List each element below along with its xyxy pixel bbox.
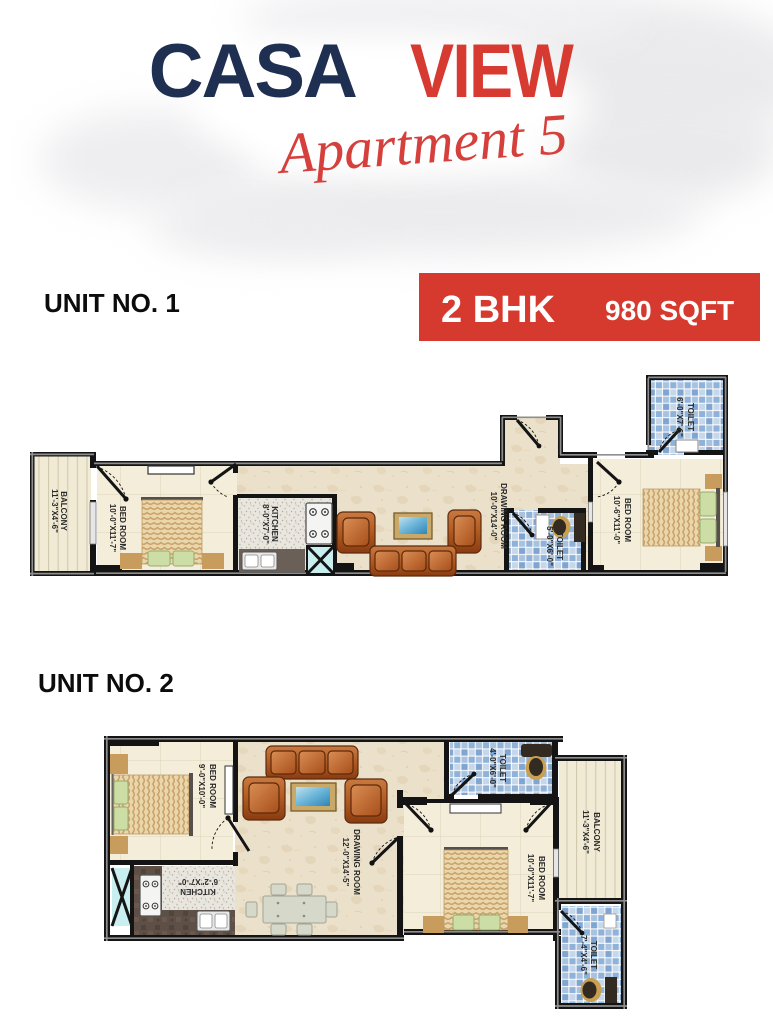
svg-text:TOILET: TOILET	[555, 532, 564, 560]
svg-text:6'-0"X7'-6": 6'-0"X7'-6"	[675, 397, 684, 437]
svg-text:10'-0"X11'-7": 10'-0"X11'-7"	[526, 854, 535, 903]
svg-text:10'-0"X14'-0": 10'-0"X14'-0"	[489, 492, 498, 541]
svg-text:11'-3"X4'-6": 11'-3"X4'-6"	[581, 810, 590, 854]
svg-text:BED ROOM: BED ROOM	[623, 498, 632, 542]
svg-text:TOILET: TOILET	[589, 941, 598, 969]
svg-text:12'-0"X14'-5": 12'-0"X14'-5"	[341, 838, 350, 887]
svg-text:BED ROOM: BED ROOM	[118, 506, 127, 550]
svg-text:DRAWING ROOM: DRAWING ROOM	[352, 829, 361, 895]
svg-text:10'-6"X11'-0": 10'-6"X11'-0"	[612, 496, 621, 545]
svg-text:BED ROOM: BED ROOM	[208, 764, 217, 808]
svg-text:4'-0"X6'-0": 4'-0"X6'-0"	[488, 748, 497, 788]
svg-text:5'-0"X6'-0": 5'-0"X6'-0"	[545, 526, 554, 566]
svg-text:DRAWING ROOM: DRAWING ROOM	[499, 483, 508, 549]
svg-text:BALCONY: BALCONY	[59, 491, 68, 531]
svg-text:8'-0"X7'-0": 8'-0"X7'-0"	[261, 504, 270, 544]
svg-text:TOILET: TOILET	[686, 403, 695, 431]
svg-text:6'-2"X7'-0": 6'-2"X7'-0"	[178, 877, 218, 886]
svg-text:7'-4"X4'-6": 7'-4"X4'-6"	[579, 935, 588, 975]
svg-text:BED ROOM: BED ROOM	[537, 856, 546, 900]
svg-text:TOILET: TOILET	[498, 754, 507, 782]
svg-text:9'-0"X10'-0": 9'-0"X10'-0"	[197, 764, 206, 809]
svg-text:10'-0"X11'-7": 10'-0"X11'-7"	[108, 504, 117, 553]
svg-text:KITCHEN: KITCHEN	[270, 506, 279, 542]
svg-text:11'-3"X4'-6": 11'-3"X4'-6"	[50, 489, 59, 533]
svg-text:BALCONY: BALCONY	[592, 812, 601, 852]
svg-text:KITCHEN: KITCHEN	[180, 887, 216, 896]
